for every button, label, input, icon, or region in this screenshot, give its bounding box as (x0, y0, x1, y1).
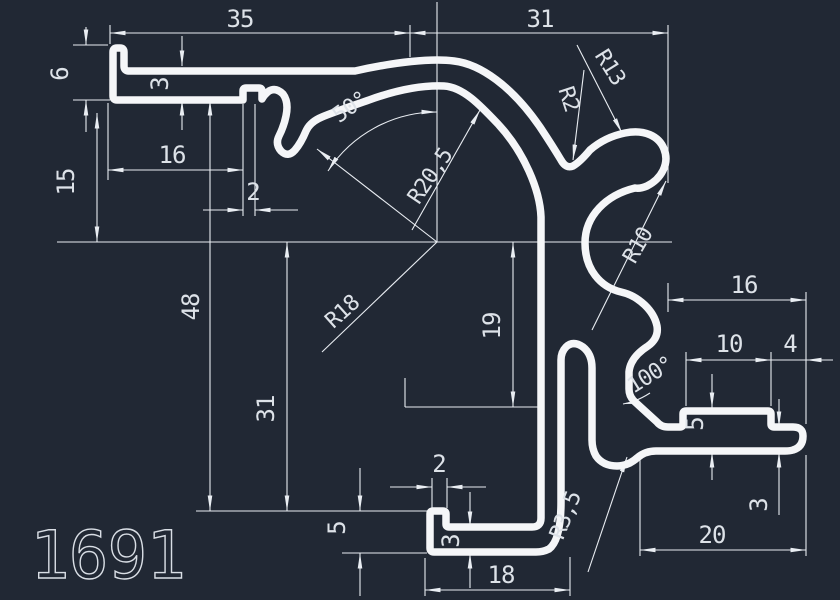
dim-width-10: 10 (716, 330, 743, 358)
dim-radius-18: R18 (321, 291, 365, 334)
dim-stub-2: 2 (432, 450, 445, 478)
dim-thickness-3-foot: 3 (437, 534, 465, 547)
dim-height-48: 48 (177, 294, 205, 321)
construction-lines (57, 2, 672, 242)
dim-radius-20-5: R20,5 (403, 144, 458, 209)
dim-height-6: 6 (46, 67, 74, 80)
dim-width-18: 18 (488, 561, 515, 589)
dim-width-16-left: 16 (159, 141, 186, 169)
dim-height-31-side: 31 (252, 396, 280, 423)
dim-width-35: 35 (227, 5, 254, 33)
dim-radius-10: R10 (618, 224, 658, 268)
dim-radius-13: R13 (589, 45, 630, 89)
dim-radius-3-5: R3,5 (545, 488, 587, 543)
cad-viewport: 35 31 6 3 16 2 15 48 31 19 50° R20,5 R18… (0, 0, 840, 600)
dim-width-16-right: 16 (731, 271, 758, 299)
dim-height-5-step: 5 (681, 417, 709, 430)
dim-height-15: 15 (52, 169, 80, 196)
dimension-labels: 35 31 6 3 16 2 15 48 31 19 50° R20,5 R18… (46, 5, 797, 589)
dim-width-31-top: 31 (527, 5, 554, 33)
dim-height-5-foot: 5 (323, 521, 351, 534)
dim-height-19: 19 (478, 313, 506, 340)
dim-thickness-3-plate: 3 (146, 77, 174, 90)
dim-thickness-3-bar: 3 (745, 498, 773, 511)
cad-canvas: 35 31 6 3 16 2 15 48 31 19 50° R20,5 R18… (0, 0, 840, 600)
dim-notch-2: 2 (246, 178, 259, 206)
part-number: 1691 (30, 517, 188, 594)
dim-width-4: 4 (783, 330, 797, 358)
dim-angle-50: 50° (328, 87, 372, 129)
dim-width-20: 20 (699, 521, 726, 549)
